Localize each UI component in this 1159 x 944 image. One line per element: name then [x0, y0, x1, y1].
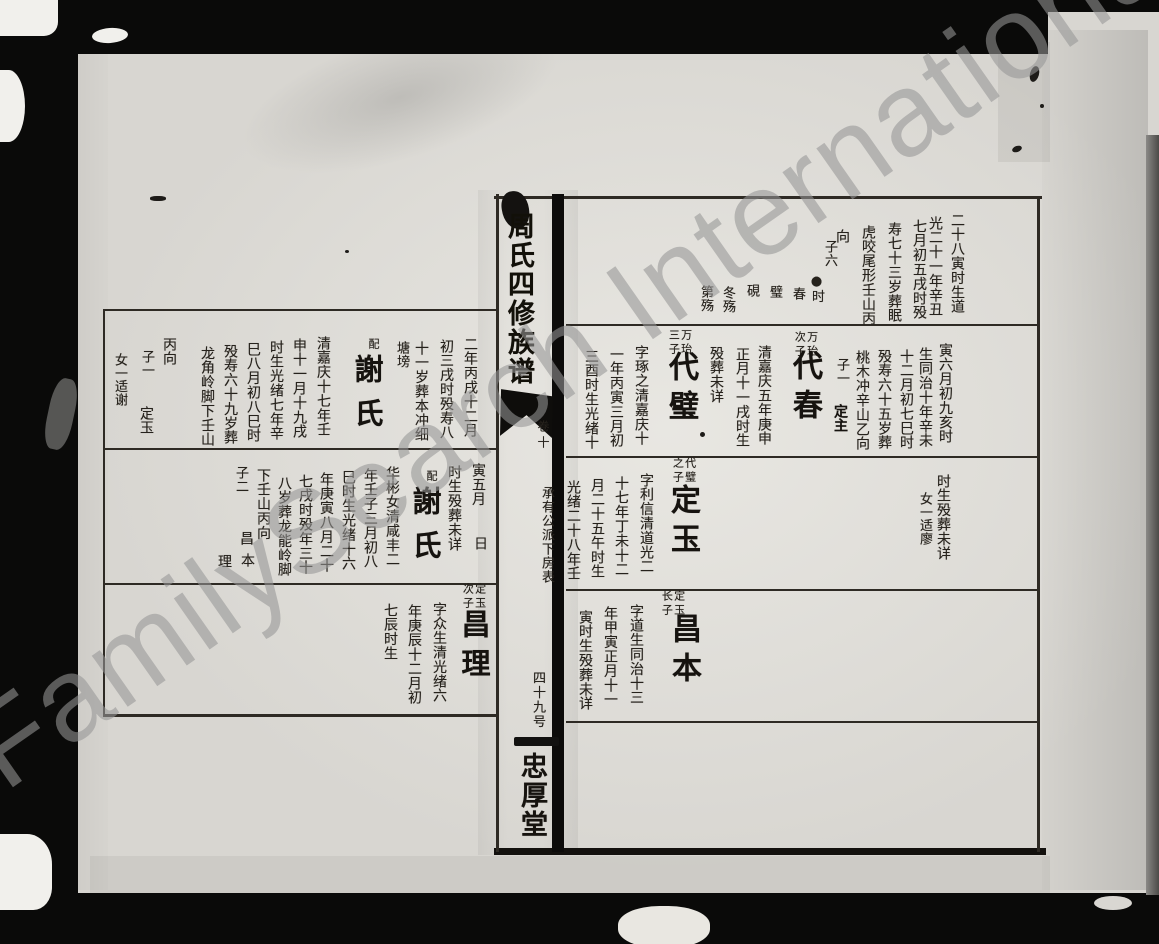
left-page-bottom-border [103, 714, 499, 717]
right-page-row-divider [566, 456, 1039, 458]
scanner-border-right [1146, 135, 1159, 895]
bio-column: 巳八月初八巳时 [246, 342, 260, 443]
bio-column: 字琢之清嘉庆十 [634, 345, 648, 446]
bio-column: 清嘉庆五年庚申 [757, 345, 771, 446]
person-name: 謝氏 [352, 354, 381, 442]
left-page-top-border [103, 309, 499, 311]
son-name: 理 [217, 554, 231, 568]
son-name: 第殇 [699, 285, 712, 312]
bio-column: 殁寿六十九岁葬 [223, 344, 237, 445]
hall-name: 忠厚堂 [518, 752, 545, 839]
scan-light-patch [0, 0, 58, 36]
relation-label: 代璧之子 [671, 457, 696, 487]
bio-column: 年壬子三月初八 [363, 468, 377, 569]
page-edge-shadow-right [1042, 30, 1148, 890]
bio-column: 七戌时殁年三十 [298, 474, 312, 575]
bio-column: 龙角岭脚下壬山 [200, 346, 214, 447]
bio-column: 八岁葬龙能岭脚 [277, 476, 291, 577]
person-name: 定玉 [667, 484, 697, 562]
son-name: 定玉 [139, 406, 153, 435]
son-name: 冬殇 [721, 286, 734, 313]
bio-column: 寅五月 [471, 463, 485, 506]
person-name: 昌理 [459, 609, 488, 687]
bio-column: 寿七十三岁葬眠 [887, 222, 901, 323]
genealogy-title: 周氏四修族谱 [505, 212, 532, 386]
left-page-row-divider [103, 448, 499, 450]
sons-count: 子六 [823, 240, 836, 267]
right-page-row-divider [566, 721, 1039, 723]
scan-speck [700, 432, 705, 437]
volume-label: 卷十 [537, 420, 549, 452]
right-page-row-divider [566, 589, 1039, 591]
son-name: 定主 [833, 404, 847, 433]
bio-column: 殁寿六十五岁葬 [877, 349, 891, 450]
son-name: 本 [240, 553, 254, 567]
bio-column: 十二月初七巳时 [899, 349, 913, 450]
bio-column: 二十八寅时生道 [950, 213, 964, 314]
bio-column: 桃木冲辛山乙向 [855, 350, 869, 451]
bio-column: 初三戌时殁寿八 [439, 339, 453, 440]
bio-column: 七辰时生 [383, 603, 397, 661]
bio-column: 巳时生光绪十六 [341, 470, 355, 571]
bio-column: 殁葬未详 [709, 346, 723, 404]
bio-column: 时生光绪七年辛 [269, 340, 283, 441]
right-page-row-divider [566, 324, 1039, 326]
right-page-right-border [1037, 198, 1040, 852]
relation-label: 配 [368, 338, 379, 349]
sons-count: 子二 [234, 466, 247, 493]
bio-column: 向 [835, 229, 849, 243]
sons-count: 子一 [835, 358, 848, 385]
left-page-row-divider [103, 583, 499, 585]
bio-column: 字众生清光绪六 [432, 602, 446, 703]
leaf-bottom-border [494, 848, 1046, 855]
bio-column: 三酉时生光绪十 [584, 349, 598, 450]
bio-column: 申十一月十九戌 [292, 338, 306, 439]
scan-light-patch [0, 834, 52, 910]
bio-column: 七月初五戌时殁 [912, 219, 926, 320]
bio-column: 时生殁葬未详 [936, 474, 950, 560]
bio-column: 年庚辰十二月初 [407, 604, 421, 705]
bio-column: 光二十一年辛丑 [928, 216, 942, 317]
scanner-border-top [50, 0, 1048, 54]
bio-column: 下壬山丙向 [256, 468, 270, 540]
bio-column: 虎咬尾形壬山丙 [861, 225, 875, 326]
scan-speck [1040, 104, 1044, 108]
bio-column: 年庚寅八月二十 [319, 472, 333, 573]
son-name: 春 [791, 287, 804, 300]
son-name: ●时 [810, 274, 823, 303]
person-name: 代璧 [665, 351, 695, 429]
bio-column: 塘塝 [395, 341, 408, 368]
sons-count: 子一 [140, 350, 153, 377]
bio-column: 清嘉庆十七年壬 [316, 336, 330, 437]
bio-column: 华彬女清咸丰二 [385, 466, 399, 567]
scanner-border-bottom [0, 893, 1159, 944]
scanner-border-left [0, 10, 78, 905]
bio-column: 时生殁葬未详 [447, 465, 461, 551]
bio-column: 生同治十年辛未 [918, 347, 932, 448]
son-name: 璧 [768, 285, 781, 298]
bio-column: 丙向 [162, 337, 176, 366]
bio-column: 十七年丁未十二 [614, 476, 628, 577]
scan-light-patch [1094, 896, 1132, 910]
bio-column: 年甲寅正月十一 [603, 606, 617, 707]
person-name: 昌本 [668, 613, 698, 691]
bio-column: 正月十一戌时生 [735, 347, 749, 448]
person-name: 謝氏 [410, 486, 439, 574]
bio-column: 寅时生殁葬未详 [578, 610, 592, 711]
hall-name-bar [514, 737, 559, 746]
bio-column: 日 [473, 536, 487, 550]
bio-column: 寅六月初九亥时 [938, 343, 952, 444]
bio-column: 十一岁葬本冲细 [414, 341, 428, 442]
scan-light-patch [618, 906, 710, 944]
branch-chart-title: 承有公派下房表 [540, 486, 553, 584]
person-name: 代春 [789, 350, 819, 428]
son-name: 昌 [239, 531, 253, 545]
page-edge-shadow-bottom [90, 856, 1050, 893]
bio-column: 字道生同治十三 [629, 604, 643, 705]
bio-column: 字利信清道光二 [639, 473, 653, 574]
bio-column: 光绪二十八年壬 [566, 480, 580, 581]
sheet-number: 四十九号 [531, 671, 544, 729]
scan-speck [150, 196, 166, 201]
scan-smudge [998, 42, 1050, 162]
scan-speck [345, 250, 349, 253]
genealogy-scan: 周氏四修族谱 卷十 承有公派下房表 四十九号 忠厚堂 二十八寅时生道光二十一年辛… [0, 0, 1159, 944]
relation-label: 配 [426, 470, 437, 481]
bio-column: 一年丙寅三月初 [609, 347, 623, 448]
right-page-top-border [494, 196, 1042, 199]
daughter-note: 女一适谢 [113, 353, 126, 407]
left-page-left-border [103, 309, 105, 716]
bio-column: 二年丙戌十二月 [463, 337, 477, 438]
spine-left-line [496, 194, 499, 852]
son-name: 硯 [745, 284, 758, 297]
bio-column: 月二十五午时生 [590, 478, 604, 579]
daughter-note: 女一适廖 [918, 492, 931, 546]
